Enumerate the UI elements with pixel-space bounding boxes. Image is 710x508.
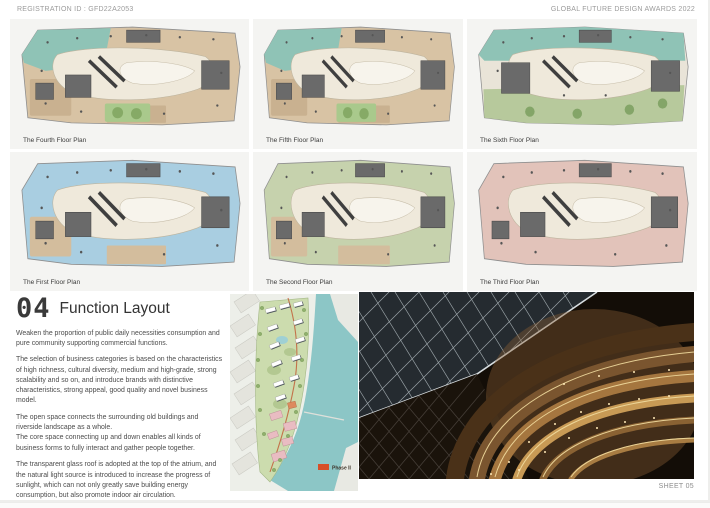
atrium-photo-drawing bbox=[359, 292, 694, 479]
section-number: 04 bbox=[16, 295, 51, 322]
phase-label: Phase II bbox=[332, 466, 352, 472]
floor-plan-drawing-third bbox=[473, 157, 691, 272]
floor-plan-drawing-fifth bbox=[259, 24, 457, 130]
presentation-sheet: REGISTRATION ID : GFD22A2053 GLOBAL FUTU… bbox=[0, 0, 710, 502]
floor-plan-label: The Second Floor Plan bbox=[266, 279, 332, 286]
floor-plan-label: The Third Floor Plan bbox=[480, 279, 539, 286]
section-paragraph: The selection of business categories is … bbox=[16, 355, 224, 406]
registration-id: REGISTRATION ID : GFD22A2053 bbox=[17, 6, 134, 13]
floor-plan-label: The Fourth Floor Plan bbox=[23, 137, 86, 144]
floor-plan-label: The First Floor Plan bbox=[23, 279, 80, 286]
site-plan-drawing: Phase II bbox=[230, 294, 358, 491]
sheet-number: SHEET 05 bbox=[659, 483, 694, 490]
section-heading: 04 Function Layout bbox=[16, 295, 224, 322]
function-layout-section: 04 Function Layout Weaken the proportion… bbox=[16, 295, 224, 508]
site-plan-map: Phase II bbox=[230, 294, 358, 491]
floor-plan-card-third: The Third Floor Plan bbox=[467, 152, 697, 291]
floor-plan-card-first: The First Floor Plan bbox=[10, 152, 249, 291]
phase-marker bbox=[318, 464, 329, 470]
floor-plan-drawing-second bbox=[259, 157, 457, 272]
award-title: GLOBAL FUTURE DESIGN AWARDS 2022 bbox=[551, 6, 695, 13]
floor-plan-card-second: The Second Floor Plan bbox=[253, 152, 463, 291]
section-paragraph: The transparent glass roof is adopted at… bbox=[16, 460, 224, 501]
floor-plan-drawing-sixth bbox=[473, 24, 691, 130]
floor-plan-label: The Sixth Floor Plan bbox=[480, 137, 539, 144]
floor-plan-label: The Fifth Floor Plan bbox=[266, 137, 323, 144]
section-title: Function Layout bbox=[60, 300, 170, 318]
floor-plan-card-sixth: The Sixth Floor Plan bbox=[467, 19, 697, 149]
section-paragraph: Weaken the proportion of public daily ne… bbox=[16, 329, 224, 349]
atrium-photo bbox=[359, 292, 694, 479]
floor-plan-card-fourth: The Fourth Floor Plan bbox=[10, 19, 249, 149]
floor-plan-card-fifth: The Fifth Floor Plan bbox=[253, 19, 463, 149]
floor-plan-drawing-first bbox=[16, 157, 243, 272]
section-paragraph: The open space connects the surrounding … bbox=[16, 413, 224, 454]
floor-plan-drawing-fourth bbox=[16, 24, 243, 130]
